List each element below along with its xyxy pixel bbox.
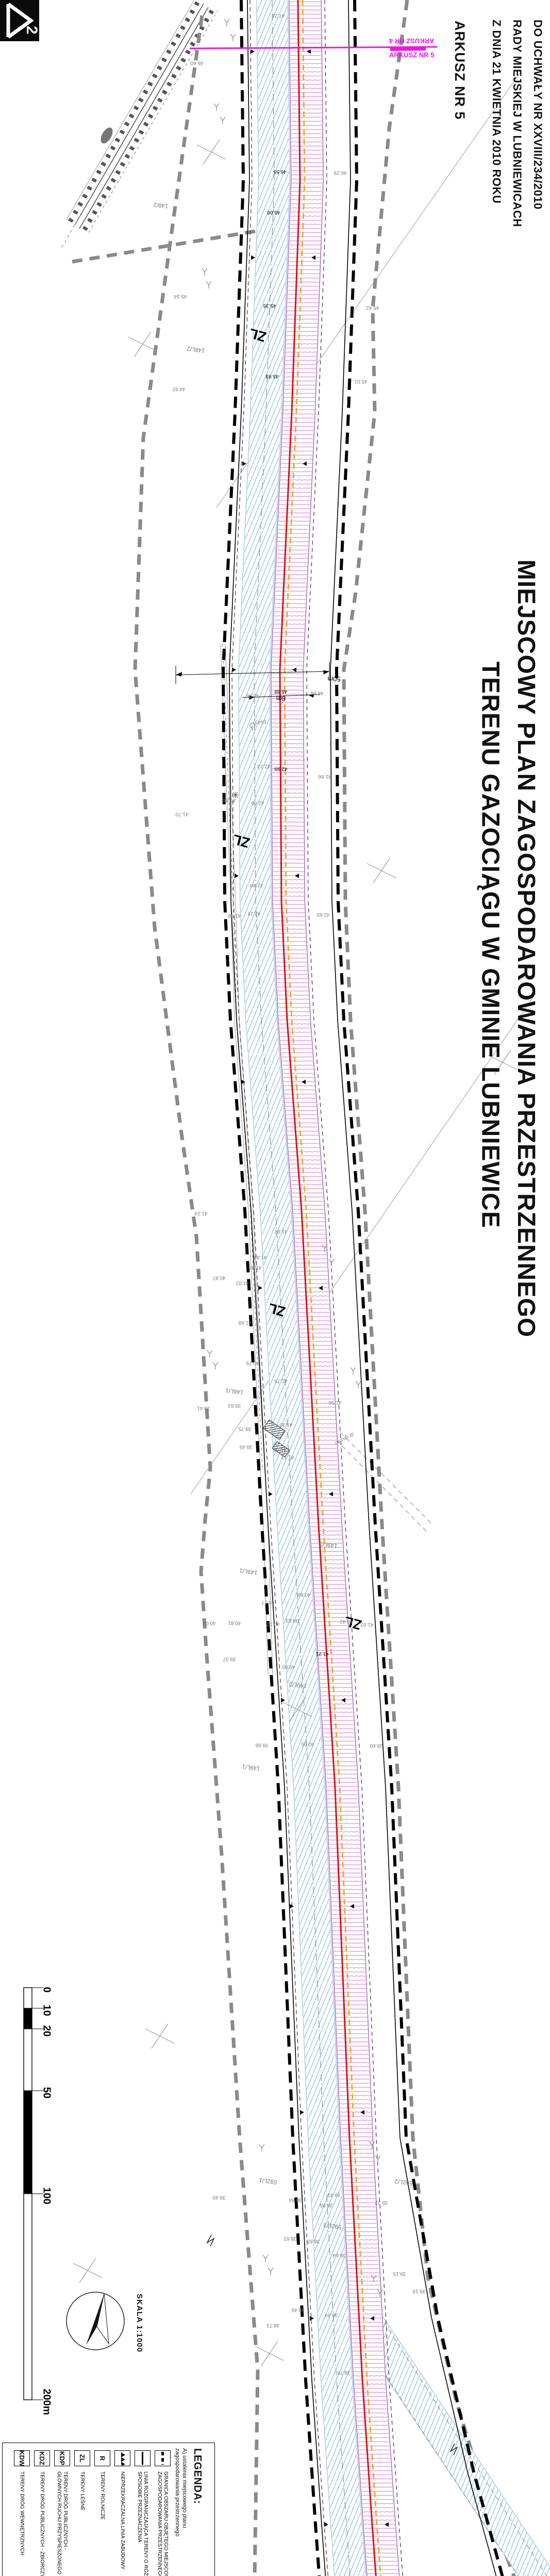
map-label: 41.30 <box>279 1422 292 1428</box>
map-label: 42.09 <box>251 800 264 806</box>
map-label: 42.40 <box>250 883 263 888</box>
svg-text:2: 2 <box>23 26 39 35</box>
legend-item-r: R TERENY ROLNICZE <box>94 2450 110 2520</box>
zone-code-kdp: KDP <box>54 2450 70 2466</box>
map-label: 39.43 <box>327 2192 340 2198</box>
map-label: 39.37 <box>223 1656 236 1662</box>
zone-code-r: R <box>94 2450 110 2466</box>
map-label: 42.19 <box>247 911 260 917</box>
map-label: 41.82 <box>274 1229 287 1234</box>
map-label: 42.65 <box>316 912 329 918</box>
map-label: 40.80 <box>282 1664 295 1670</box>
map-label: 40.05 <box>203 1620 215 1626</box>
zone-code-zl: ZL <box>74 2450 90 2466</box>
legend-item-kdw: KDW TERENY DRÓG WEWNĘTRZNYCH <box>14 2450 30 2555</box>
header-line: RADY MIEJSKIEJ W LUBNIEWICACH <box>507 20 527 227</box>
map-label: 39.40 <box>212 2195 225 2200</box>
legend-item-kdz: KDZ TERENY DRÓG PUBLICZNYCH - ZBIORCZYCH <box>34 2450 50 2576</box>
zone-code-kdz: KDZ <box>34 2450 50 2466</box>
scale-tick-label: 100 <box>41 2187 53 2204</box>
map-label: 47.21 <box>272 13 285 19</box>
legend-heading-line: zagospodarowania przestrzennego <box>174 2448 181 2536</box>
sheet-marker-top-below: ARKUSZ NR 5 <box>389 51 434 59</box>
legend-item-kdp: KDP TERENY DRÓG PUBLICZNYCH - GŁÓWNYCH R… <box>54 2450 70 2574</box>
map-label: 45.42 <box>366 305 379 311</box>
map-label: 40.79 <box>246 1360 259 1366</box>
map-label: 41.12 <box>281 1454 294 1460</box>
map-label: 39.86 <box>255 1742 268 1748</box>
map-label: 41.75 <box>274 1378 287 1384</box>
map-label: 1643 <box>255 719 266 725</box>
map-canvas <box>0 0 550 2576</box>
legend-item-label: TERENY DRÓG PUBLICZNYCH - GŁÓWNYCH RUCHU… <box>56 2471 68 2574</box>
map-label: 46.29 <box>334 170 346 176</box>
legend-item-label: NIEPRZEKRACZALNA LINIA ZABUDOWY <box>120 2471 126 2570</box>
scale-label: SKALA 1:1000 <box>135 2294 144 2352</box>
map-label: 38.45 <box>291 2307 304 2313</box>
plan-sheet: 2 DO UCHWAŁY NR XXVIII/234/2010 RADY MIE… <box>0 0 550 2576</box>
map-label: 41.56 <box>328 1400 341 1405</box>
legend-item-label: GRANICA OBSZARU OBJĘTEGO MIEJSCOWYM PLAN… <box>157 2471 169 2576</box>
dirt-road <box>336 1432 433 1533</box>
legend-item-zabudowa: NIEPRZEKRACZALNA LINIA ZABUDOWY <box>114 2450 130 2570</box>
map-label: 41.89 <box>228 913 241 919</box>
map-label: 38.65 <box>307 2239 320 2244</box>
legend-heading-line: A) ustalenia miejscowego planu <box>180 2448 188 2536</box>
sheet-connector-arrow-icon: 2 <box>0 0 39 41</box>
map-label: 45.35 <box>263 303 276 309</box>
legend-item-zl: ZL TERENY LEŚNE <box>74 2450 90 2511</box>
map-label: 41.88 <box>248 1265 261 1270</box>
dividing-line-symbol <box>135 2450 151 2466</box>
map-label: 41.00 <box>273 1447 286 1452</box>
legend-item-label: TERENY ROLNICZE <box>99 2471 106 2520</box>
map-label: 39.18 <box>412 2289 425 2294</box>
north-arrow <box>66 2292 124 2350</box>
map-label: 41.70 <box>175 811 188 817</box>
map-label: 50m <box>327 675 340 683</box>
map-label: 8m <box>276 695 286 703</box>
map-label: 45.34 <box>174 294 187 299</box>
legend-item-label: TERENY DRÓG PUBLICZNYCH - ZBIORCZYCH <box>39 2471 45 2576</box>
map-label: 40.81 <box>228 1620 241 1626</box>
legend-item-label: TERENY DRÓG WEWNĘTRZNYCH <box>19 2471 25 2555</box>
map-label: 41.24 <box>194 1211 207 1216</box>
map-label: 39.15 <box>393 2271 406 2277</box>
topo-road-alley <box>62 0 218 247</box>
header-line: DO UCHWAŁY NR XXVIII/234/2010 <box>527 20 548 227</box>
sheet-marker-top-above: ARKUSZ NR 4 <box>389 37 434 45</box>
legend-item-granica: GRANICA OBSZARU OBJĘTEGO MIEJSCOWYM PLAN… <box>155 2450 171 2576</box>
map-label: 41.02 <box>360 1622 373 1628</box>
map-label: 38.73 <box>266 2323 279 2328</box>
zone-code-kdw: KDW <box>14 2450 30 2466</box>
map-label: 42.99 <box>274 766 287 772</box>
map-label: 38.84 <box>289 2197 302 2203</box>
map-label: 39.83 <box>286 1618 298 1623</box>
legend-title: LEGENDA: <box>191 2448 203 2504</box>
map-label: 41.02 <box>236 1280 248 1286</box>
map-label: 40.87 <box>212 1275 225 1281</box>
map-label: 40.12 <box>266 1621 279 1627</box>
map-label: 38.70 <box>337 2370 350 2376</box>
map-label: 41.66 <box>318 774 331 779</box>
plan-boundary-symbol <box>155 2450 171 2466</box>
scale-tick-label: 50 <box>41 2087 53 2098</box>
map-label: 39.22 <box>375 2200 388 2206</box>
map-label: 39.60 <box>370 1743 382 1749</box>
map-label: 41.84 <box>254 1255 266 1260</box>
map-label: 46.55 <box>273 169 286 175</box>
map-label: 40.42 <box>340 1619 353 1624</box>
plan-title-line2: TERENU GAZOCIĄGU W GMINIE LUBNIEWICE <box>472 560 508 1337</box>
map-label: 39.45 <box>239 1444 252 1450</box>
map-label: 40.17 <box>261 1600 274 1605</box>
scale-tick-label: 20 <box>41 2025 53 2037</box>
map-label: 41.68 <box>238 1320 251 1326</box>
forest-boundary-left <box>135 15 258 2576</box>
map-label: 46.88 <box>310 690 323 696</box>
setback-line-symbol <box>114 2450 130 2466</box>
map-label: 45.93 <box>265 374 278 379</box>
plan-title-line1: MIEJSCOWY PLAN ZAGOSPODAROWANIA PRZESTRZ… <box>508 560 544 1337</box>
map-label: 40.65 <box>301 1741 314 1747</box>
map-label: 44.92 <box>172 386 185 392</box>
sheet-connector-symbol: 2 <box>0 0 39 41</box>
map-label: 40.69 <box>297 1592 310 1598</box>
map-label: 46.60 <box>190 60 203 66</box>
scale-tick-label: 0 <box>41 1987 53 1992</box>
map-label: 42.96 <box>246 693 259 699</box>
resolution-header: DO UCHWAŁY NR XXVIII/234/2010 RADY MIEJS… <box>486 20 548 227</box>
map-label: 38.64 <box>332 2252 345 2258</box>
map-label: 38.62 <box>284 2236 296 2242</box>
legend: LEGENDA: A) ustalenia miejscowego planu … <box>2 2443 215 2576</box>
legend-item-label: TERENY LEŚNE <box>79 2471 86 2511</box>
map-label: 46.08 <box>267 210 280 215</box>
plan-title: MIEJSCOWY PLAN ZAGOSPODAROWANIA PRZESTRZ… <box>472 560 544 1337</box>
map-label: 39.83 <box>228 1403 241 1409</box>
map-label: 45.01 <box>354 379 367 384</box>
header-line: Z DNIA 21 KWIETNIA 2010 ROKU <box>486 20 507 227</box>
scale-tick-label: 10 <box>41 2005 53 2016</box>
map-label: 41.84 <box>223 798 236 803</box>
map-label: 41.21 <box>315 1651 328 1657</box>
map-label: 39.75 <box>238 1426 251 1432</box>
map-label: 38.95 <box>320 2202 332 2208</box>
legend-item-label: LINIA ROZGRANICZAJĄCA TERENY O RÓŻNYM SP… <box>137 2471 148 2576</box>
map-label: 46.88 <box>274 689 287 694</box>
legend-section-a-heading: A) ustalenia miejscowego planu zagospoda… <box>174 2448 188 2536</box>
map-label: 39.41 <box>197 1405 210 1411</box>
legend-item-rozgraniczenie: LINIA ROZGRANICZAJĄCA TERENY O RÓŻNYM SP… <box>135 2450 151 2576</box>
scale-tick-label: 200m <box>41 2388 53 2415</box>
map-label: 42.23 <box>257 764 270 769</box>
map-label: 38.49 <box>325 2312 338 2318</box>
sheet-number: ARKUSZ NR 5 <box>452 21 468 120</box>
